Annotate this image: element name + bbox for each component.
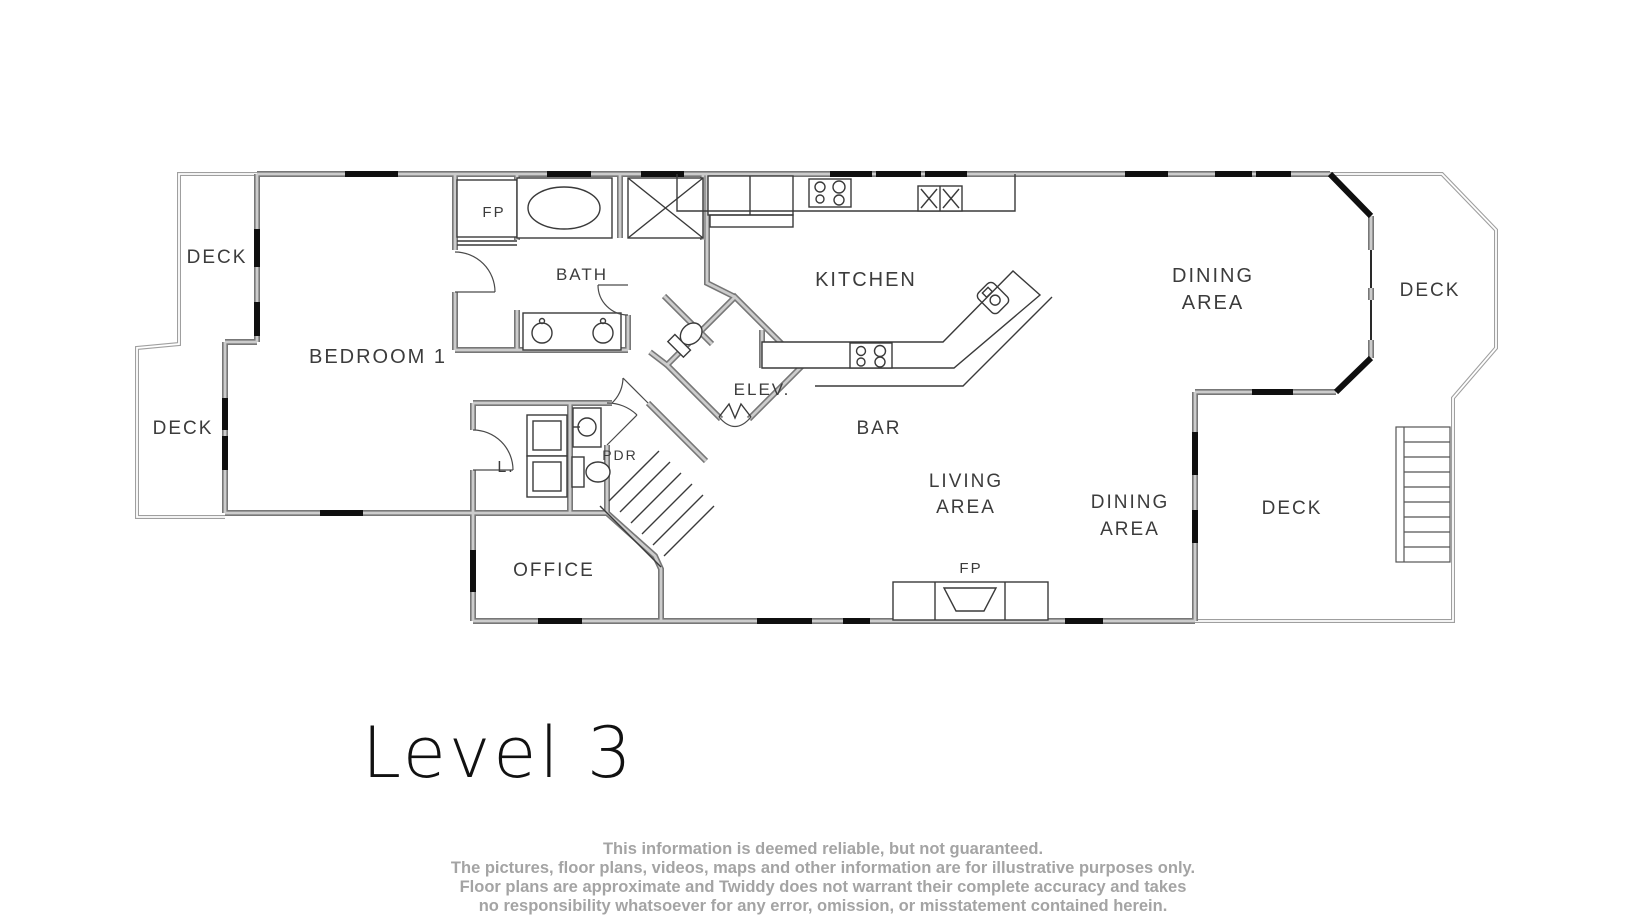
- elevator-door: [719, 404, 751, 433]
- disclaimer-line-2: The pictures, floor plans, videos, maps …: [395, 859, 1251, 878]
- fireplace-bottom: [893, 582, 1048, 620]
- label-bedroom1: BEDROOM 1: [309, 346, 447, 368]
- level-title: Level 3: [362, 712, 635, 794]
- range-top: [809, 179, 851, 207]
- label-deck-top-left: DECK: [187, 247, 248, 268]
- island-cooktop: [850, 343, 892, 368]
- label-dining-top-2: AREA: [1182, 292, 1244, 314]
- deck-railings: [137, 174, 1496, 621]
- label-powder: PDR: [602, 447, 638, 463]
- floor-plan-page: DECK DECK BEDROOM 1 FP BATH KITCHEN DINI…: [0, 0, 1632, 916]
- powder-sink: [573, 408, 601, 447]
- label-deck-bottom-left: DECK: [153, 418, 214, 439]
- label-bar: BAR: [856, 418, 901, 439]
- label-deck-right: DECK: [1400, 280, 1461, 301]
- label-living-1: LIVING: [929, 471, 1003, 492]
- interior-stairs: [600, 451, 714, 567]
- label-deck-bottom-right: DECK: [1262, 498, 1323, 519]
- deck-stairs: [1396, 427, 1450, 562]
- disclaimer-line-3: Floor plans are approximate and Twiddy d…: [395, 878, 1251, 897]
- washer-dryer: [527, 415, 567, 497]
- walls: [225, 174, 1371, 621]
- label-kitchen: KITCHEN: [815, 269, 917, 291]
- label-living-2: AREA: [936, 497, 996, 518]
- label-fp-bottom: FP: [959, 560, 982, 577]
- floor-plan-svg: DECK DECK BEDROOM 1 FP BATH KITCHEN DINI…: [0, 0, 1632, 916]
- disclaimer-line-4: no responsibility whatsoever for any err…: [395, 897, 1251, 916]
- disclaimer-line-1: This information is deemed reliable, but…: [395, 840, 1251, 859]
- label-laundry: L.: [497, 459, 514, 476]
- windows: [225, 174, 1371, 621]
- label-office: OFFICE: [513, 560, 595, 581]
- label-elevator: ELEV.: [734, 380, 791, 399]
- label-dining-bottom-1: DINING: [1091, 492, 1170, 513]
- label-dining-bottom-2: AREA: [1100, 519, 1160, 540]
- kitchen-sink: [918, 186, 962, 211]
- label-bath: BATH: [556, 265, 608, 284]
- disclaimer: This information is deemed reliable, but…: [395, 840, 1251, 916]
- label-fp-top: FP: [482, 204, 505, 221]
- label-dining-top-1: DINING: [1172, 265, 1254, 287]
- bath-vanity: [523, 313, 621, 350]
